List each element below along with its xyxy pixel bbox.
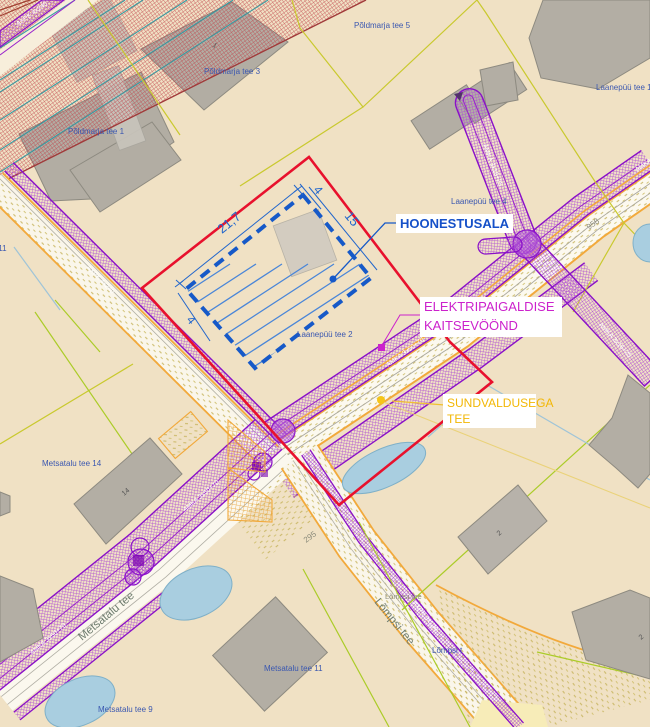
svg-text:HOONESTUSALA: HOONESTUSALA	[400, 216, 510, 231]
svg-text:Lõmpsi t: Lõmpsi t	[432, 646, 463, 655]
svg-text:ELEKTRIPAIGALDISE: ELEKTRIPAIGALDISE	[424, 299, 555, 314]
svg-text:Põldmarja tee 5: Põldmarja tee 5	[354, 21, 411, 30]
svg-text:Metsatalu tee 14: Metsatalu tee 14	[42, 459, 102, 468]
svg-text:Laanepüü tee 4: Laanepüü tee 4	[451, 197, 507, 206]
svg-text:TEE: TEE	[447, 412, 470, 426]
svg-text:SUNDVALDUSEGA: SUNDVALDUSEGA	[447, 396, 553, 410]
svg-text:KAITSEVÖÖND: KAITSEVÖÖND	[424, 318, 518, 333]
svg-text:Laanepüü tee 1: Laanepüü tee 1	[596, 83, 650, 92]
svg-text:Laanepüü tee 2: Laanepüü tee 2	[297, 330, 353, 339]
svg-text:Metsatalu tee 9: Metsatalu tee 9	[98, 705, 153, 714]
svg-text:Metsatalu tee 11: Metsatalu tee 11	[264, 664, 323, 673]
svg-text:Metsatalu tee 11: Metsatalu tee 11	[0, 244, 7, 253]
svg-text:Põldmarja tee 3: Põldmarja tee 3	[204, 67, 261, 76]
svg-text:Põldmarja tee 1: Põldmarja tee 1	[68, 127, 125, 136]
